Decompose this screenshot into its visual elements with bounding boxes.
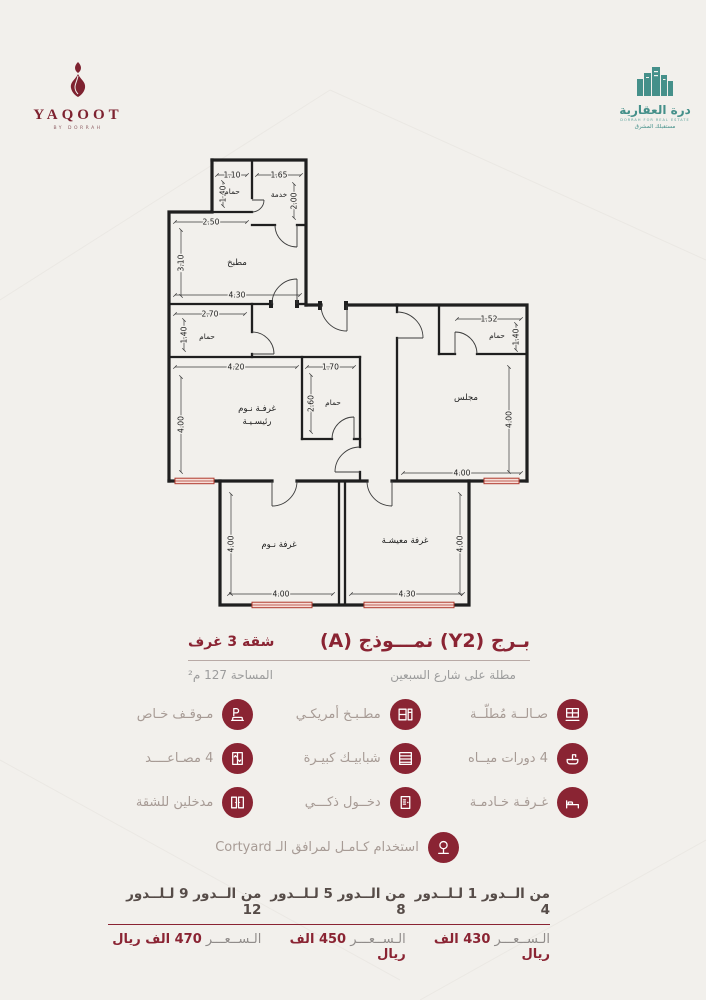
yaqoot-tagline: BY DORRAH: [28, 126, 128, 131]
yaqoot-name: YAQOOT: [28, 107, 128, 124]
price-label: الـســعـــر: [206, 932, 261, 947]
elevators-icon: [222, 743, 253, 774]
svg-text:حمام: حمام: [489, 331, 505, 340]
dorrah-name: درة العقارية: [610, 103, 700, 117]
maid-room-icon: [557, 787, 588, 818]
svg-text:3.10: 3.10: [177, 254, 186, 271]
feature-label: غـرفـة خـادمـة: [470, 795, 548, 810]
svg-text:2.60: 2.60: [307, 395, 316, 412]
svg-text:4.00: 4.00: [227, 535, 236, 552]
svg-text:غرفة نـوم: غرفة نـوم: [261, 540, 297, 550]
features-section: صـالــة مُطلّــة مطـبـخ أمريكـي مـوقـف خ…: [86, 698, 588, 863]
street-subtitle: مطلة على شارع السبعين: [390, 668, 530, 682]
exterior-walls: [169, 160, 527, 605]
yaqoot-emblem-icon: [63, 60, 93, 98]
title-divider: [188, 660, 530, 661]
feature-courtyard: استخدام كـامـل لمرافق الـ Cortyard: [215, 831, 459, 863]
yaqoot-logo: YAQOOT BY DORRAH: [28, 60, 128, 131]
apartment-type: شقة 3 غرف: [188, 634, 274, 652]
feature-label: شبابيـك كبيـرة: [304, 751, 381, 766]
svg-text:مطبخ: مطبخ: [227, 258, 247, 268]
floor-range: من الــدور 5 لـلــدور 8: [261, 886, 405, 925]
feature-label: دخــول ذكـــي: [305, 795, 381, 810]
feature-hall-view: صـالــة مُطلّــة: [421, 698, 588, 730]
svg-text:4.00: 4.00: [456, 535, 465, 552]
svg-text:2.70: 2.70: [202, 310, 219, 319]
svg-text:4.00: 4.00: [273, 590, 290, 599]
feature-label: مـوقـف خـاص: [137, 707, 214, 722]
svg-text:4.30: 4.30: [229, 291, 246, 300]
floor-range: من الــدور 9 لـلــدور 12: [108, 886, 261, 925]
svg-text:4.00: 4.00: [177, 416, 186, 433]
feature-kitchen: مطـبـخ أمريكـي: [253, 698, 420, 730]
price-value: 470 الف ريال: [112, 932, 202, 947]
svg-text:4.00: 4.00: [505, 411, 514, 428]
title-block: بـرج (Y2) نمـــوذج (A) شقة 3 غرف مطلة عل…: [188, 630, 530, 682]
svg-text:غرفـة نـوم: غرفـة نـوم: [238, 404, 276, 414]
feature-label: استخدام كـامـل لمرافق الـ Cortyard: [215, 840, 419, 855]
courtyard-icon: [428, 832, 459, 863]
svg-text:1.65: 1.65: [271, 171, 288, 180]
price-tier-3: من الــدور 9 لـلــدور 12 الـســعـــر 470…: [108, 886, 261, 962]
svg-text:4.30: 4.30: [399, 590, 416, 599]
svg-text:1.40: 1.40: [180, 326, 189, 343]
svg-text:غرفة معيشـة: غرفة معيشـة: [382, 536, 429, 546]
feature-label: 4 دورات ميــاه: [468, 751, 548, 766]
dorrah-skyline-icon: [637, 66, 673, 96]
feature-label: صـالــة مُطلّــة: [470, 707, 548, 722]
svg-text:حمام: حمام: [199, 332, 215, 341]
svg-text:1.52: 1.52: [481, 315, 498, 324]
hall-view-icon: [557, 699, 588, 730]
floor-range: من الــدور 1 لـلــدور 4: [406, 886, 550, 925]
kitchen-icon: [390, 699, 421, 730]
svg-text:رئيسـيـة: رئيسـيـة: [242, 417, 271, 427]
feature-maid-room: غـرفـة خـادمـة: [421, 786, 588, 818]
pricing-section: من الــدور 1 لـلــدور 4 الـســعـــر 430 …: [108, 886, 550, 962]
price-label: الـســعـــر: [350, 932, 405, 947]
price-label: الـســعـــر: [495, 932, 550, 947]
feature-label: مطـبـخ أمريكـي: [296, 707, 381, 722]
svg-text:1.40: 1.40: [512, 328, 521, 345]
svg-text:مجلس: مجلس: [454, 393, 478, 403]
price-tier-1: من الــدور 1 لـلــدور 4 الـســعـــر 430 …: [406, 886, 550, 962]
svg-text:2.50: 2.50: [203, 218, 220, 227]
feature-elevators: 4 مصـاعــــد: [86, 742, 253, 774]
two-entrances-icon: [222, 787, 253, 818]
big-windows-icon: [390, 743, 421, 774]
feature-parking: مـوقـف خـاص: [86, 698, 253, 730]
area-label: المساحة 127 م²: [188, 668, 273, 682]
parking-icon: [222, 699, 253, 730]
dorrah-logo: درة العقارية DORRAH FOR REAL ESTATE مستق…: [610, 66, 700, 130]
svg-text:4.20: 4.20: [228, 363, 245, 372]
room-labels: حمام خدمة مطبخ حمام غرفـة نـوم رئيسـيـة …: [199, 187, 505, 550]
svg-text:خدمة: خدمة: [271, 190, 288, 199]
smart-entry-icon: [390, 787, 421, 818]
feature-two-entrances: مدخلين للشقة: [86, 786, 253, 818]
poster: YAQOOT BY DORRAH درة العقارية DORRAH FOR…: [0, 0, 706, 1000]
svg-text:1.70: 1.70: [322, 363, 339, 372]
floor-plan: 1.10 1.40 1.65 2.00 2.50 3.10 4.30 2.70 …: [157, 142, 549, 620]
svg-text:حمام: حمام: [224, 187, 240, 196]
feature-smart-entry: دخــول ذكـــي: [253, 786, 420, 818]
interior-walls: [169, 160, 527, 605]
dorrah-subtitle-en: DORRAH FOR REAL ESTATE: [610, 118, 700, 122]
feature-label: مدخلين للشقة: [136, 795, 214, 810]
price-tier-2: من الــدور 5 لـلــدور 8 الـســعـــر 450 …: [261, 886, 405, 962]
bathrooms-icon: [557, 743, 588, 774]
svg-text:4.00: 4.00: [454, 469, 471, 478]
feature-label: 4 مصـاعــــد: [145, 751, 213, 766]
feature-bathrooms: 4 دورات ميــاه: [421, 742, 588, 774]
page-title: بـرج (Y2) نمـــوذج (A): [320, 630, 530, 652]
feature-big-windows: شبابيـك كبيـرة: [253, 742, 420, 774]
svg-text:حمام: حمام: [325, 398, 341, 407]
dorrah-subtitle-ar: مستقبلك المشرق: [610, 124, 700, 130]
svg-text:2.00: 2.00: [290, 192, 299, 209]
svg-text:1.10: 1.10: [224, 171, 241, 180]
